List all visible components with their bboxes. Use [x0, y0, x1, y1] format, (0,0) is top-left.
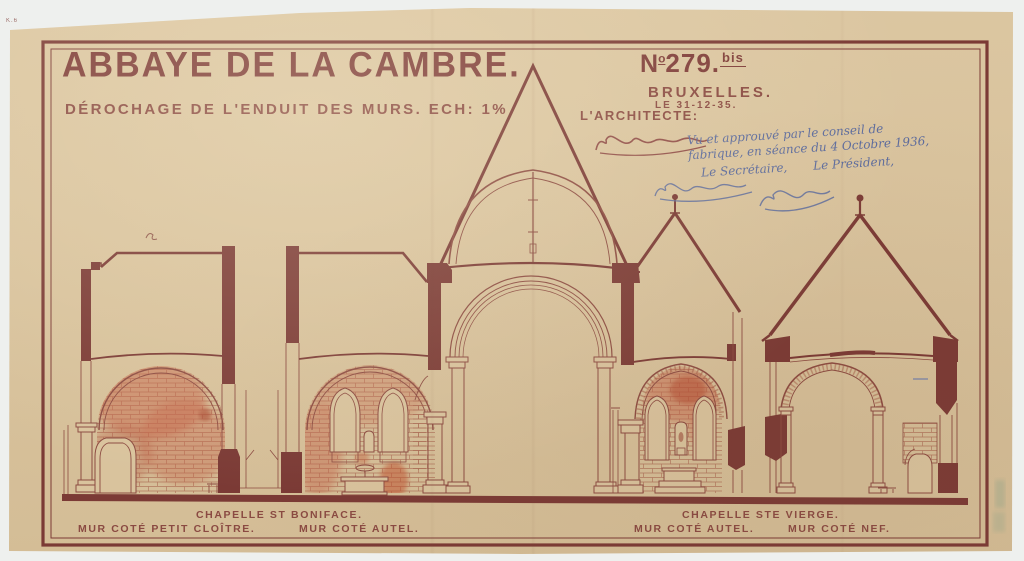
- column: [446, 357, 470, 493]
- scanned-drawing-sheet: K.6 ABBAYE DE LA CAMBRE. DÉROCHAGE DE L'…: [0, 0, 1024, 561]
- caption-mur-autel-right: MUR COTÉ AUTEL.: [634, 523, 754, 535]
- green-stamp: [993, 480, 1005, 532]
- section-ste-vierge-nef-drawing: [762, 195, 958, 493]
- corner-mark: K.6: [6, 18, 18, 24]
- finial: [670, 195, 680, 214]
- column: [76, 423, 97, 492]
- city-label: BRUXELLES.: [648, 84, 773, 101]
- lancet-window: [378, 388, 408, 462]
- section-st-boniface-autel-drawing: [281, 246, 447, 498]
- section-ste-vierge-autel-drawing: [611, 195, 745, 494]
- king-post: [528, 172, 538, 262]
- pyramid-roof: [630, 213, 740, 312]
- number-value: 279.: [665, 48, 720, 78]
- column: [594, 357, 618, 493]
- pilaster: [618, 420, 643, 493]
- number-prefix: No: [640, 50, 665, 78]
- drawing-subtitle: DÉROCHAGE DE L'ENDUIT DES MURS. ECH: 1%: [65, 101, 508, 118]
- number-suffix: bis: [720, 50, 746, 67]
- finial: [855, 195, 865, 215]
- door: [95, 438, 136, 493]
- lancet-window: [330, 388, 360, 462]
- drawing-title: ABBAYE DE LA CAMBRE.: [62, 45, 521, 86]
- president-signature: [760, 191, 834, 211]
- caption-mur-nef: MUR COTÉ NEF.: [788, 523, 890, 535]
- caption-chapelle-st-boniface: CHAPELLE ST BONIFACE.: [196, 509, 363, 521]
- section-st-boniface-cloitre-drawing: [64, 234, 286, 494]
- niche: [364, 431, 374, 452]
- ground-line: [62, 494, 968, 505]
- caption-mur-petit-cloitre: MUR COTÉ PETIT CLOÎTRE.: [78, 523, 255, 535]
- pyramid-roof: [770, 215, 950, 335]
- architect-label: L'ARCHITECTE:: [580, 108, 699, 123]
- caption-mur-autel-left: MUR COTÉ AUTEL.: [299, 523, 419, 535]
- column: [869, 407, 887, 493]
- section-nave-central-drawing: [427, 66, 640, 493]
- great-arch: [450, 276, 612, 357]
- secretary-signature: [655, 184, 752, 202]
- lancet-window: [645, 396, 669, 460]
- statue-niche: [675, 422, 687, 455]
- drawing-number: No279.bis: [640, 48, 746, 79]
- lancet-window: [693, 396, 716, 460]
- altar: [341, 477, 388, 495]
- caption-chapelle-ste-vierge: CHAPELLE STE VIERGE.: [682, 509, 839, 521]
